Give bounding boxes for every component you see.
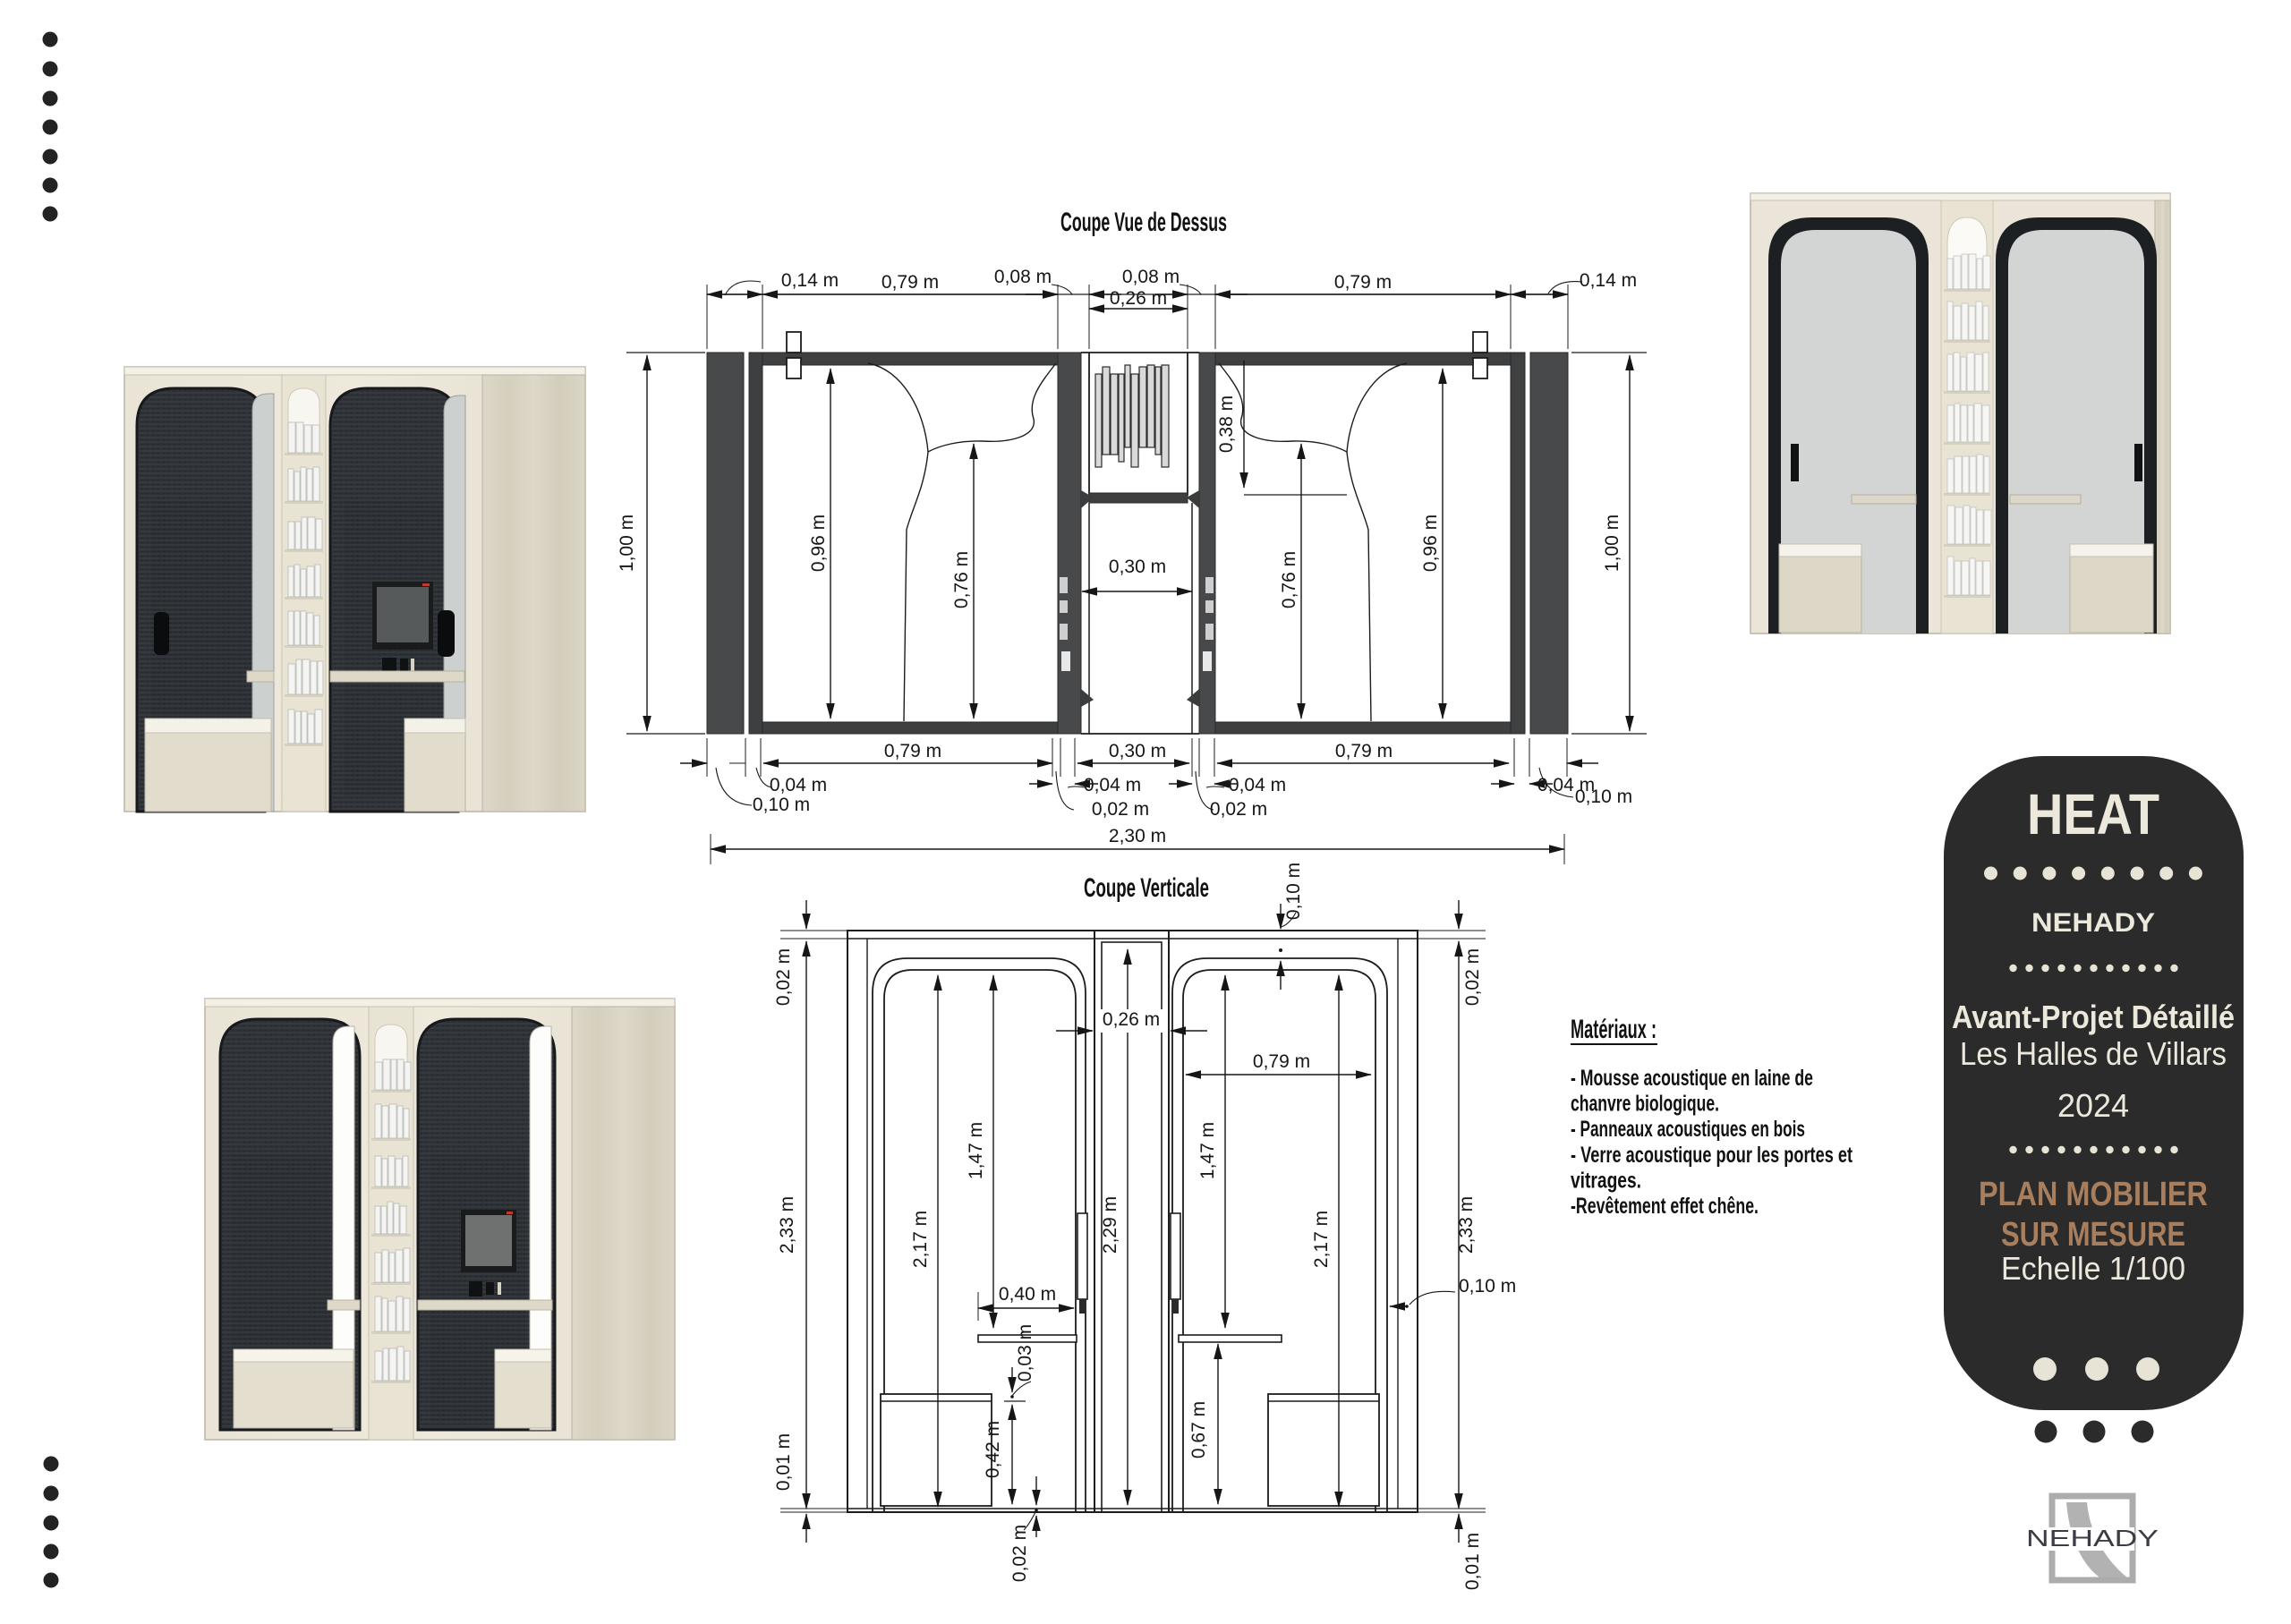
svg-text:0,04 m: 0,04 m	[1084, 775, 1141, 795]
svg-text:0,10 m: 0,10 m	[753, 795, 810, 815]
svg-text:0,26 m: 0,26 m	[1103, 1009, 1160, 1030]
svg-text:0,30 m: 0,30 m	[1109, 557, 1166, 577]
svg-text:0,10 m: 0,10 m	[1459, 1276, 1516, 1297]
svg-text:0,79 m: 0,79 m	[1334, 272, 1392, 293]
svg-text:- Panneaux acoustiques en bois: - Panneaux acoustiques en bois	[1571, 1117, 1805, 1142]
svg-text:NEHADY: NEHADY	[2026, 1525, 2159, 1552]
svg-text:-Revêtement effet chêne.: -Revêtement effet chêne.	[1571, 1194, 1759, 1219]
svg-text:Les Halles de Villars: Les Halles de Villars	[1960, 1035, 2227, 1072]
svg-text:Echelle 1/100: Echelle 1/100	[2001, 1250, 2185, 1287]
svg-text:1,00 m: 1,00 m	[1602, 514, 1622, 572]
svg-text:2,17 m: 2,17 m	[1311, 1211, 1332, 1268]
svg-text:0,76 m: 0,76 m	[951, 551, 972, 608]
svg-text:0,79 m: 0,79 m	[884, 741, 941, 761]
svg-text:PLAN MOBILIER: PLAN MOBILIER	[1979, 1176, 2208, 1213]
svg-text:0,76 m: 0,76 m	[1279, 551, 1299, 608]
svg-text:0,14 m: 0,14 m	[1580, 270, 1637, 291]
svg-text:1,47 m: 1,47 m	[1197, 1122, 1218, 1179]
svg-text:vitrages.: vitrages.	[1571, 1168, 1641, 1193]
svg-text:0,08 m: 0,08 m	[1122, 267, 1180, 287]
svg-text:- Verre acoustique pour les po: - Verre acoustique pour les portes et	[1571, 1143, 1852, 1168]
svg-text:0,10 m: 0,10 m	[1283, 863, 1304, 920]
svg-text:0,26 m: 0,26 m	[1110, 288, 1167, 309]
svg-text:SUR MESURE: SUR MESURE	[2001, 1216, 2185, 1254]
svg-text:0,03 m: 0,03 m	[1015, 1324, 1035, 1382]
svg-text:0,02 m: 0,02 m	[1210, 799, 1267, 820]
svg-text:1,47 m: 1,47 m	[966, 1122, 986, 1179]
svg-text:NEHADY: NEHADY	[2031, 908, 2155, 938]
svg-text:2024: 2024	[2057, 1087, 2129, 1124]
svg-text:0,02 m: 0,02 m	[1462, 948, 1483, 1006]
svg-text:1,00 m: 1,00 m	[617, 514, 637, 572]
svg-text:0,01 m: 0,01 m	[1462, 1533, 1483, 1590]
svg-text:0,79 m: 0,79 m	[1253, 1051, 1310, 1072]
svg-text:0,04 m: 0,04 m	[1229, 775, 1286, 795]
svg-text:Coupe Verticale: Coupe Verticale	[1084, 873, 1209, 903]
svg-text:0,04 m: 0,04 m	[770, 775, 827, 795]
svg-text:0,67 m: 0,67 m	[1188, 1401, 1209, 1458]
svg-text:0,10 m: 0,10 m	[1575, 786, 1632, 807]
svg-text:Avant-Projet Détaillé: Avant-Projet Détaillé	[1952, 999, 2235, 1035]
svg-text:0,96 m: 0,96 m	[1420, 514, 1441, 572]
svg-text:2,29 m: 2,29 m	[1100, 1196, 1120, 1254]
svg-text:0,42 m: 0,42 m	[983, 1421, 1003, 1478]
svg-text:0,14 m: 0,14 m	[781, 270, 839, 291]
svg-text:2,33 m: 2,33 m	[1456, 1196, 1477, 1254]
svg-text:0,96 m: 0,96 m	[808, 514, 829, 572]
svg-text:0,40 m: 0,40 m	[999, 1284, 1056, 1305]
svg-text:0,08 m: 0,08 m	[994, 267, 1052, 287]
svg-text:Coupe Vue de Dessus: Coupe Vue de Dessus	[1060, 208, 1227, 237]
svg-text:2,30 m: 2,30 m	[1109, 826, 1166, 846]
svg-text:0,02 m: 0,02 m	[773, 948, 794, 1006]
svg-text:0,01 m: 0,01 m	[773, 1433, 794, 1491]
svg-text:0,79 m: 0,79 m	[1335, 741, 1392, 761]
svg-text:2,17 m: 2,17 m	[910, 1211, 931, 1268]
svg-text:0,02 m: 0,02 m	[1092, 799, 1149, 820]
svg-text:0,79 m: 0,79 m	[881, 272, 939, 293]
svg-text:0,30 m: 0,30 m	[1109, 741, 1166, 761]
svg-text:- Mousse acoustique en laine d: - Mousse acoustique en laine de	[1571, 1066, 1813, 1091]
svg-text:Matériaux :: Matériaux :	[1571, 1015, 1657, 1044]
svg-text:chanvre biologique.: chanvre biologique.	[1571, 1092, 1719, 1117]
svg-text:0,38 m: 0,38 m	[1216, 395, 1237, 453]
svg-text:HEAT: HEAT	[2027, 782, 2159, 846]
svg-text:2,33 m: 2,33 m	[777, 1196, 797, 1254]
svg-text:0,02 m: 0,02 m	[1009, 1525, 1030, 1582]
